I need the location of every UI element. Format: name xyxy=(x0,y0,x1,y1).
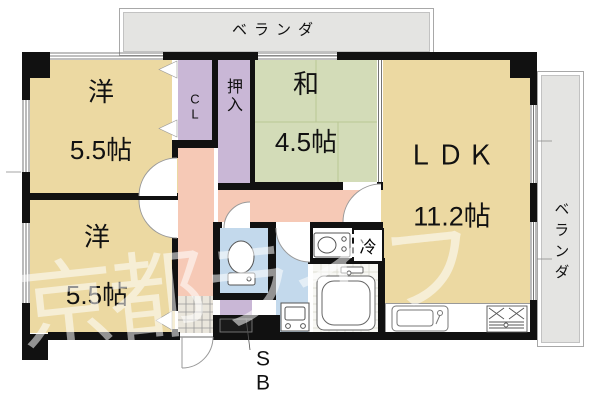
wall-corner-bl xyxy=(22,334,48,360)
room-western-top-size: 5.5帖 xyxy=(70,137,132,166)
wall-right-2 xyxy=(530,183,537,222)
hallway-horizontal xyxy=(218,190,378,222)
wall-corner-tl xyxy=(22,52,50,78)
room-ldk-size: 11.2帖 xyxy=(407,201,497,231)
wall-room2-e xyxy=(172,238,178,311)
entrance-genkan xyxy=(178,296,213,333)
wall-top-2 xyxy=(337,52,510,60)
room-ldk-name: ＬＤＫ xyxy=(407,141,497,171)
room-ldk-label: ＬＤＫ 11.2帖 xyxy=(407,110,497,261)
wall-toilet-e xyxy=(268,228,276,300)
sliding-partition xyxy=(377,60,383,182)
washroom xyxy=(276,228,308,335)
room-western-bottom-label: 洋 5.5帖 xyxy=(66,194,128,340)
wall-oshiire-washitsu xyxy=(250,60,255,190)
refrigerator-space: 冷 xyxy=(352,228,384,263)
closet-oshiire-label: 押 入 xyxy=(227,79,243,115)
wall-top-1 xyxy=(163,52,258,60)
room-japanese-size: 4.5帖 xyxy=(275,129,337,158)
wall-bath-e xyxy=(378,258,385,334)
kitchen-counter xyxy=(385,303,532,334)
wall-toilet-w xyxy=(213,228,220,300)
wall-stub-1 xyxy=(172,148,178,158)
refrigerator-label: 冷 xyxy=(360,233,377,258)
room-western-bottom-name: 洋 xyxy=(66,223,128,252)
room-western-top-label: 洋 5.5帖 xyxy=(70,49,132,195)
storage-box xyxy=(220,300,252,315)
balcony-top-label: ベランダ xyxy=(232,23,320,40)
toilet-room xyxy=(220,228,268,293)
room-japanese-label: 和 4.5帖 xyxy=(275,41,337,187)
room-japanese-name: 和 xyxy=(275,70,337,99)
wall-shoebox-block xyxy=(213,315,280,340)
wall-stub-2 xyxy=(377,182,383,190)
wall-under-oshiire xyxy=(218,183,252,190)
balcony-right-label: ベランダ xyxy=(552,201,569,285)
wall-left-1 xyxy=(22,78,30,100)
room-western-top-name: 洋 xyxy=(70,78,132,107)
bathroom xyxy=(313,264,378,332)
hallway-vertical xyxy=(178,140,214,300)
shoe-box-label: S B xyxy=(256,347,270,394)
washbasin-area xyxy=(313,228,352,258)
wall-stub-3 xyxy=(172,329,178,333)
room-western-bottom-size: 5.5帖 xyxy=(66,282,128,311)
wall-right-1 xyxy=(530,52,537,105)
wall-cl-oshiire xyxy=(212,60,218,148)
wall-left-3 xyxy=(22,303,30,334)
wall-toilet-s xyxy=(213,293,276,300)
closet-cl-label: C L xyxy=(190,92,199,121)
floor-plan: 冷 xyxy=(0,0,600,400)
